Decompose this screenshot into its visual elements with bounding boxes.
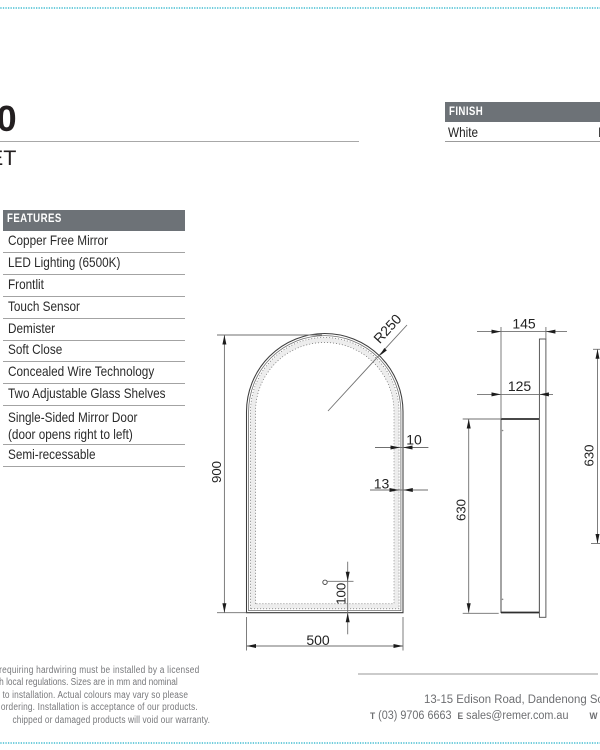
svg-text:13: 13 bbox=[374, 475, 390, 491]
svg-text:10: 10 bbox=[406, 431, 422, 447]
svg-text:630: 630 bbox=[453, 499, 468, 521]
svg-text:R250: R250 bbox=[370, 311, 405, 347]
svg-text:630: 630 bbox=[582, 444, 597, 466]
svg-text:500: 500 bbox=[306, 632, 330, 648]
svg-text:125: 125 bbox=[508, 378, 532, 394]
svg-text:100: 100 bbox=[333, 583, 348, 605]
svg-text:900: 900 bbox=[209, 461, 224, 483]
svg-text:145: 145 bbox=[512, 316, 536, 332]
